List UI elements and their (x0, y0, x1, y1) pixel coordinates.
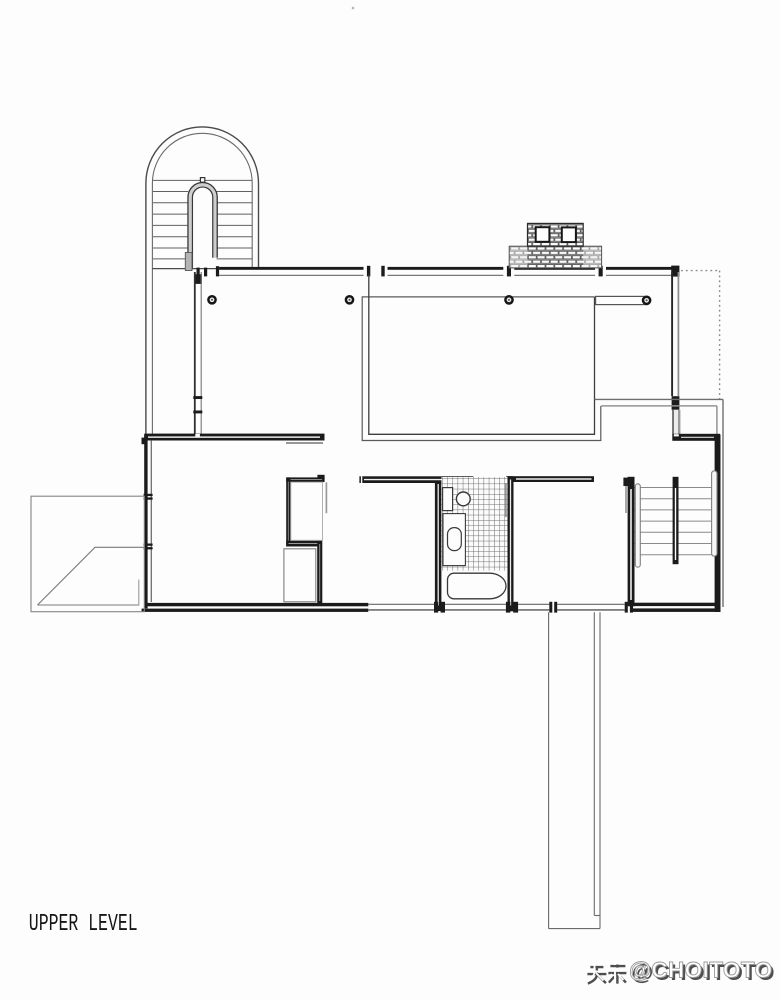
svg-text:UPPER LEVEL: UPPER LEVEL (29, 911, 138, 938)
svg-text:@CHOITOTO: @CHOITOTO (629, 958, 772, 983)
